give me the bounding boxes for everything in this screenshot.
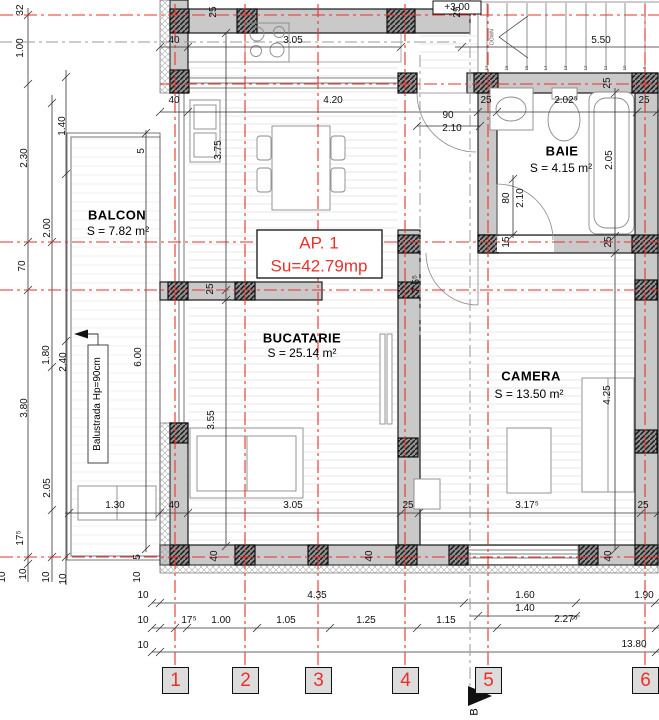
dim-v-23: 7.5⁵ <box>412 275 422 293</box>
stair-step-number: 12 <box>584 65 589 70</box>
dim-h-1: 3.05 <box>283 36 302 46</box>
dim-v-17: 25 <box>453 6 463 17</box>
dim-v-7: 2.00 <box>43 218 53 237</box>
dim-v-2: 2.30 <box>20 148 30 167</box>
chair <box>331 168 345 192</box>
dim-v-33: 40 <box>604 550 614 561</box>
dim-h-15: 25 <box>637 501 648 511</box>
dim-h-16: 4.35 <box>307 591 326 601</box>
dim-v-9: 2.05 <box>43 478 53 497</box>
sofa <box>190 428 303 498</box>
room-area-bucatarie: S = 25.14 m² <box>267 347 336 359</box>
dim-v-19: 3.75 <box>214 140 224 159</box>
room-area-balcon: S = 7.82 m² <box>87 225 149 237</box>
room-name-balcon: BALCON <box>88 209 146 222</box>
grid-bubble-2: 2 <box>232 667 259 694</box>
dim-h-4: 4.20 <box>323 96 342 106</box>
dim-v-18: 25 <box>603 77 613 88</box>
dim-v-22: 3.55 <box>207 410 217 429</box>
dim-h-6: 2.02⁵ <box>554 96 578 106</box>
dim-h-9: 2.10 <box>442 124 461 134</box>
dim-h-20: 17⁵ <box>181 616 196 626</box>
dim-h-22: 1.05 <box>276 616 295 626</box>
room-name-baie: BAIE <box>546 145 579 158</box>
grid-bubble-6: 6 <box>632 667 659 694</box>
dim-h-7: 25 <box>638 96 649 106</box>
dim-h-3: 40 <box>168 96 179 106</box>
room-name-bucatarie: BUCATARIE <box>263 332 341 345</box>
dim-v-3: 70 <box>18 260 28 271</box>
grid-bubble-1: 1 <box>162 667 189 694</box>
dim-h-18: 1.90 <box>634 591 653 601</box>
dim-v-26: 25 <box>604 236 614 247</box>
apartment-area: Su=42.79mp <box>271 258 368 275</box>
chair <box>257 136 271 160</box>
stair-step-number: 15 <box>524 65 529 70</box>
dim-v-30: 4.25 <box>603 385 613 404</box>
dim-h-13: 25 <box>402 501 413 511</box>
stairs-down-label: DOWN <box>491 29 496 45</box>
dim-v-5: 17⁵ <box>16 530 26 545</box>
desk <box>507 428 551 493</box>
dim-v-14: 10 <box>0 571 8 582</box>
chair <box>257 168 271 192</box>
radiator <box>380 334 385 424</box>
dim-h-8: 90 <box>442 111 453 121</box>
dim-v-28: 80 <box>502 192 512 203</box>
room-area-baie: S = 4.15 m² <box>530 162 592 174</box>
dim-v-16: 25 <box>209 6 219 17</box>
grid-bubble-3: 3 <box>305 667 332 694</box>
dim-v-6: 10 <box>19 568 29 579</box>
dining-table <box>272 126 330 210</box>
dim-h-12: 3.05 <box>283 501 302 511</box>
dim-v-31: 40 <box>210 550 220 561</box>
dim-v-4: 3.80 <box>20 398 30 417</box>
stair-step-number: 17 <box>485 65 490 70</box>
dim-v-34: 5 <box>133 554 143 560</box>
dim-v-10: 10 <box>42 571 52 582</box>
dim-h-17: 1.60 <box>515 591 534 601</box>
dim-h-2: 5.50 <box>591 36 610 46</box>
dim-v-13: 10 <box>59 573 69 584</box>
dim-h-10: 1.30 <box>105 501 124 511</box>
grid-bubble-4: 4 <box>392 667 419 694</box>
dim-v-25: 15 <box>502 236 512 247</box>
dim-v-8: 1.80 <box>42 345 52 364</box>
dim-h-26: 13.80 <box>621 640 646 650</box>
stair-step-number: 9 <box>643 67 648 70</box>
stair-step-number: 10 <box>623 65 628 70</box>
dim-h-11: 40 <box>168 501 179 511</box>
dim-h-25: 2.27⁵ <box>554 615 578 625</box>
dim-v-24: 25 <box>206 283 216 294</box>
dim-h-5: 25 <box>480 96 491 106</box>
railing-note: Balustrada Hp=90cm <box>93 357 103 451</box>
dim-h-24: 1.15 <box>436 616 455 626</box>
dim-h-21: 1.00 <box>211 616 230 626</box>
dim-h-28: 10 <box>137 616 148 626</box>
dim-v-32: 40 <box>365 550 375 561</box>
dim-h-27: 10 <box>137 591 148 601</box>
stair-step-number: 16 <box>505 65 510 70</box>
dim-v-27: 2.05 <box>605 150 615 169</box>
stair-step-number: 13 <box>564 65 569 70</box>
dim-v-29: 2.10 <box>516 188 526 207</box>
dim-h-29: 10 <box>137 641 148 651</box>
stair-step-number: 14 <box>544 65 549 70</box>
stair-step-number: 11 <box>603 66 608 71</box>
dim-v-0: 32 <box>16 4 26 15</box>
room-area-camera: S = 13.50 m² <box>494 388 563 400</box>
dim-v-1: 1.00 <box>16 38 26 57</box>
stairs <box>478 2 659 73</box>
floor-plan: BALCON S = 7.82 m² BUCATARIE S = 25.14 m… <box>0 0 659 720</box>
room-name-camera: CAMERA <box>501 370 560 383</box>
dim-h-0: 40 <box>168 36 179 46</box>
dim-h-23: 1.25 <box>356 616 375 626</box>
dim-v-20: 5 <box>137 148 147 154</box>
side-table <box>414 479 440 509</box>
dim-v-21: 6.00 <box>134 347 144 366</box>
grid-bubble-5: 5 <box>475 667 502 694</box>
dim-v-12: 2.40 <box>59 352 69 371</box>
chair <box>331 136 345 160</box>
dim-h-14: 3.17⁵ <box>515 501 539 511</box>
section-label: B <box>470 708 481 715</box>
dim-v-11: 1.40 <box>58 116 68 135</box>
dim-v-15: 10 <box>133 571 143 582</box>
dim-h-19: 1.40 <box>515 604 534 614</box>
apartment-label: AP. 1 <box>299 235 338 252</box>
